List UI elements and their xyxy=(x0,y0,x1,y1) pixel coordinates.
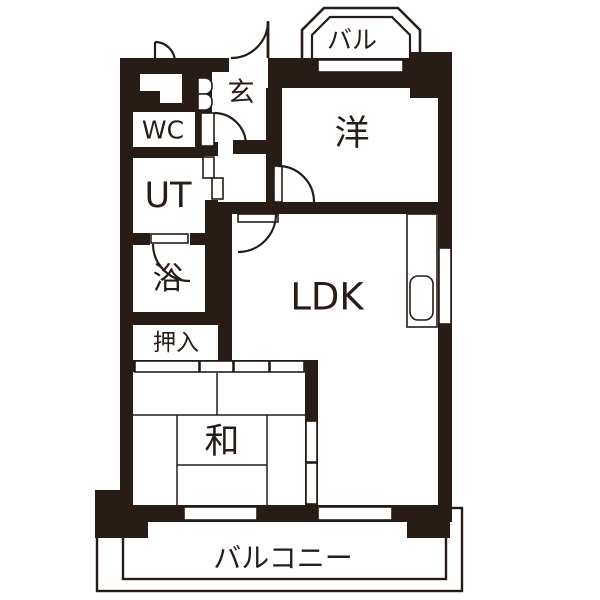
window-north xyxy=(318,60,403,72)
floorplan-canvas: バル 玄 WC UT 浴 押入 洋 LDK 和 バルコニー xyxy=(0,0,600,600)
entrance-door-arc xyxy=(231,21,268,58)
label-ldk: LDK xyxy=(290,276,365,319)
window-south-ldk xyxy=(318,507,392,520)
ldk-door-panel xyxy=(238,214,278,222)
kitchen-sink xyxy=(410,276,433,320)
window-south-japanese xyxy=(184,507,257,520)
fusuma-panel xyxy=(135,361,199,372)
label-bay-balcony: バル xyxy=(327,26,377,55)
toilet-door-panel xyxy=(201,113,214,146)
fusuma-panel xyxy=(270,361,304,372)
hall-floor xyxy=(218,112,266,202)
fusuma-panel-vertical xyxy=(306,421,317,462)
floorplan-drawing: バル 玄 WC UT 浴 押入 洋 LDK 和 バルコニー xyxy=(0,0,600,600)
label-japanese-room: 和 xyxy=(204,422,239,462)
utility-slider-panel xyxy=(212,178,223,199)
kitchen-counter xyxy=(407,214,437,327)
fusuma-panel xyxy=(234,361,269,372)
fusuma-panel xyxy=(200,361,233,372)
label-western-room: 洋 xyxy=(334,114,369,154)
window-east xyxy=(439,248,451,324)
western-door-panel xyxy=(274,166,282,202)
fusuma-panel-vertical xyxy=(306,463,317,504)
label-closet: 押入 xyxy=(153,330,199,356)
label-entrance: 玄 xyxy=(228,78,255,109)
label-toilet: WC xyxy=(142,116,184,145)
genkan-hall-wall xyxy=(233,140,266,154)
bath-door-panel xyxy=(151,234,188,243)
label-utility: UT xyxy=(145,176,193,216)
label-balcony: バルコニー xyxy=(213,542,352,575)
label-bath: 浴 xyxy=(153,261,184,297)
utility-slider-panel xyxy=(203,157,214,178)
